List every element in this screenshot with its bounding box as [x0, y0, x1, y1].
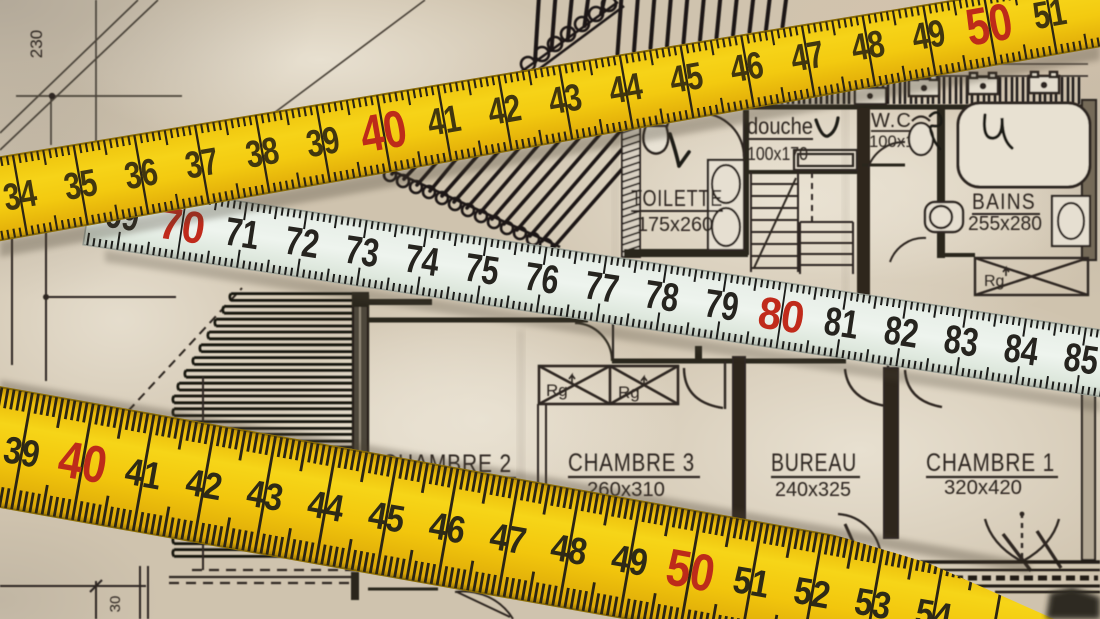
svg-text:CHAMBRE 1: CHAMBRE 1 [926, 449, 1055, 477]
svg-text:Rg: Rg [984, 273, 1004, 290]
svg-text:230: 230 [27, 30, 46, 58]
svg-text:42: 42 [183, 462, 226, 510]
svg-text:48: 48 [547, 527, 590, 575]
svg-text:80: 80 [755, 286, 808, 343]
svg-text:82: 82 [881, 308, 921, 357]
svg-text:320x420: 320x420 [944, 477, 1022, 499]
svg-text:85: 85 [1061, 335, 1100, 384]
svg-text:255x280: 255x280 [968, 213, 1042, 235]
svg-text:BUREAU: BUREAU [771, 449, 857, 477]
svg-text:81: 81 [821, 299, 861, 348]
svg-text:53: 53 [851, 581, 894, 619]
svg-text:78: 78 [642, 272, 682, 321]
svg-text:40: 40 [54, 430, 111, 496]
svg-text:45: 45 [365, 494, 408, 542]
svg-text:30: 30 [107, 596, 124, 613]
svg-text:51: 51 [730, 559, 773, 607]
svg-text:TOILETTE: TOILETTE [631, 185, 723, 211]
svg-text:240x325: 240x325 [775, 479, 851, 501]
svg-text:175x260: 175x260 [637, 214, 713, 236]
svg-text:43: 43 [243, 472, 286, 520]
svg-text:47: 47 [487, 516, 530, 564]
svg-text:83: 83 [941, 317, 981, 366]
svg-text:46: 46 [426, 505, 469, 553]
svg-text:77: 77 [582, 263, 622, 312]
svg-text:39: 39 [0, 429, 43, 477]
svg-text:100x170: 100x170 [747, 144, 808, 164]
svg-text:51: 51 [1030, 0, 1070, 38]
svg-text:Rg: Rg [546, 381, 568, 400]
svg-text:84: 84 [1001, 326, 1042, 375]
svg-text:73: 73 [342, 228, 382, 277]
svg-text:41: 41 [122, 451, 165, 499]
svg-text:50: 50 [962, 0, 1017, 58]
svg-text:75: 75 [462, 246, 502, 295]
svg-text:52: 52 [791, 570, 834, 618]
svg-text:Rg: Rg [618, 383, 640, 402]
svg-text:50: 50 [662, 538, 719, 604]
svg-text:BAINS: BAINS [972, 189, 1036, 214]
svg-text:44: 44 [304, 483, 347, 531]
svg-text:CHAMBRE 3: CHAMBRE 3 [568, 449, 695, 477]
svg-text:71: 71 [222, 210, 262, 259]
svg-text:79: 79 [701, 281, 741, 330]
svg-text:74: 74 [402, 237, 443, 286]
svg-text:72: 72 [282, 219, 322, 268]
svg-text:49: 49 [608, 537, 651, 585]
svg-text:76: 76 [522, 254, 562, 303]
